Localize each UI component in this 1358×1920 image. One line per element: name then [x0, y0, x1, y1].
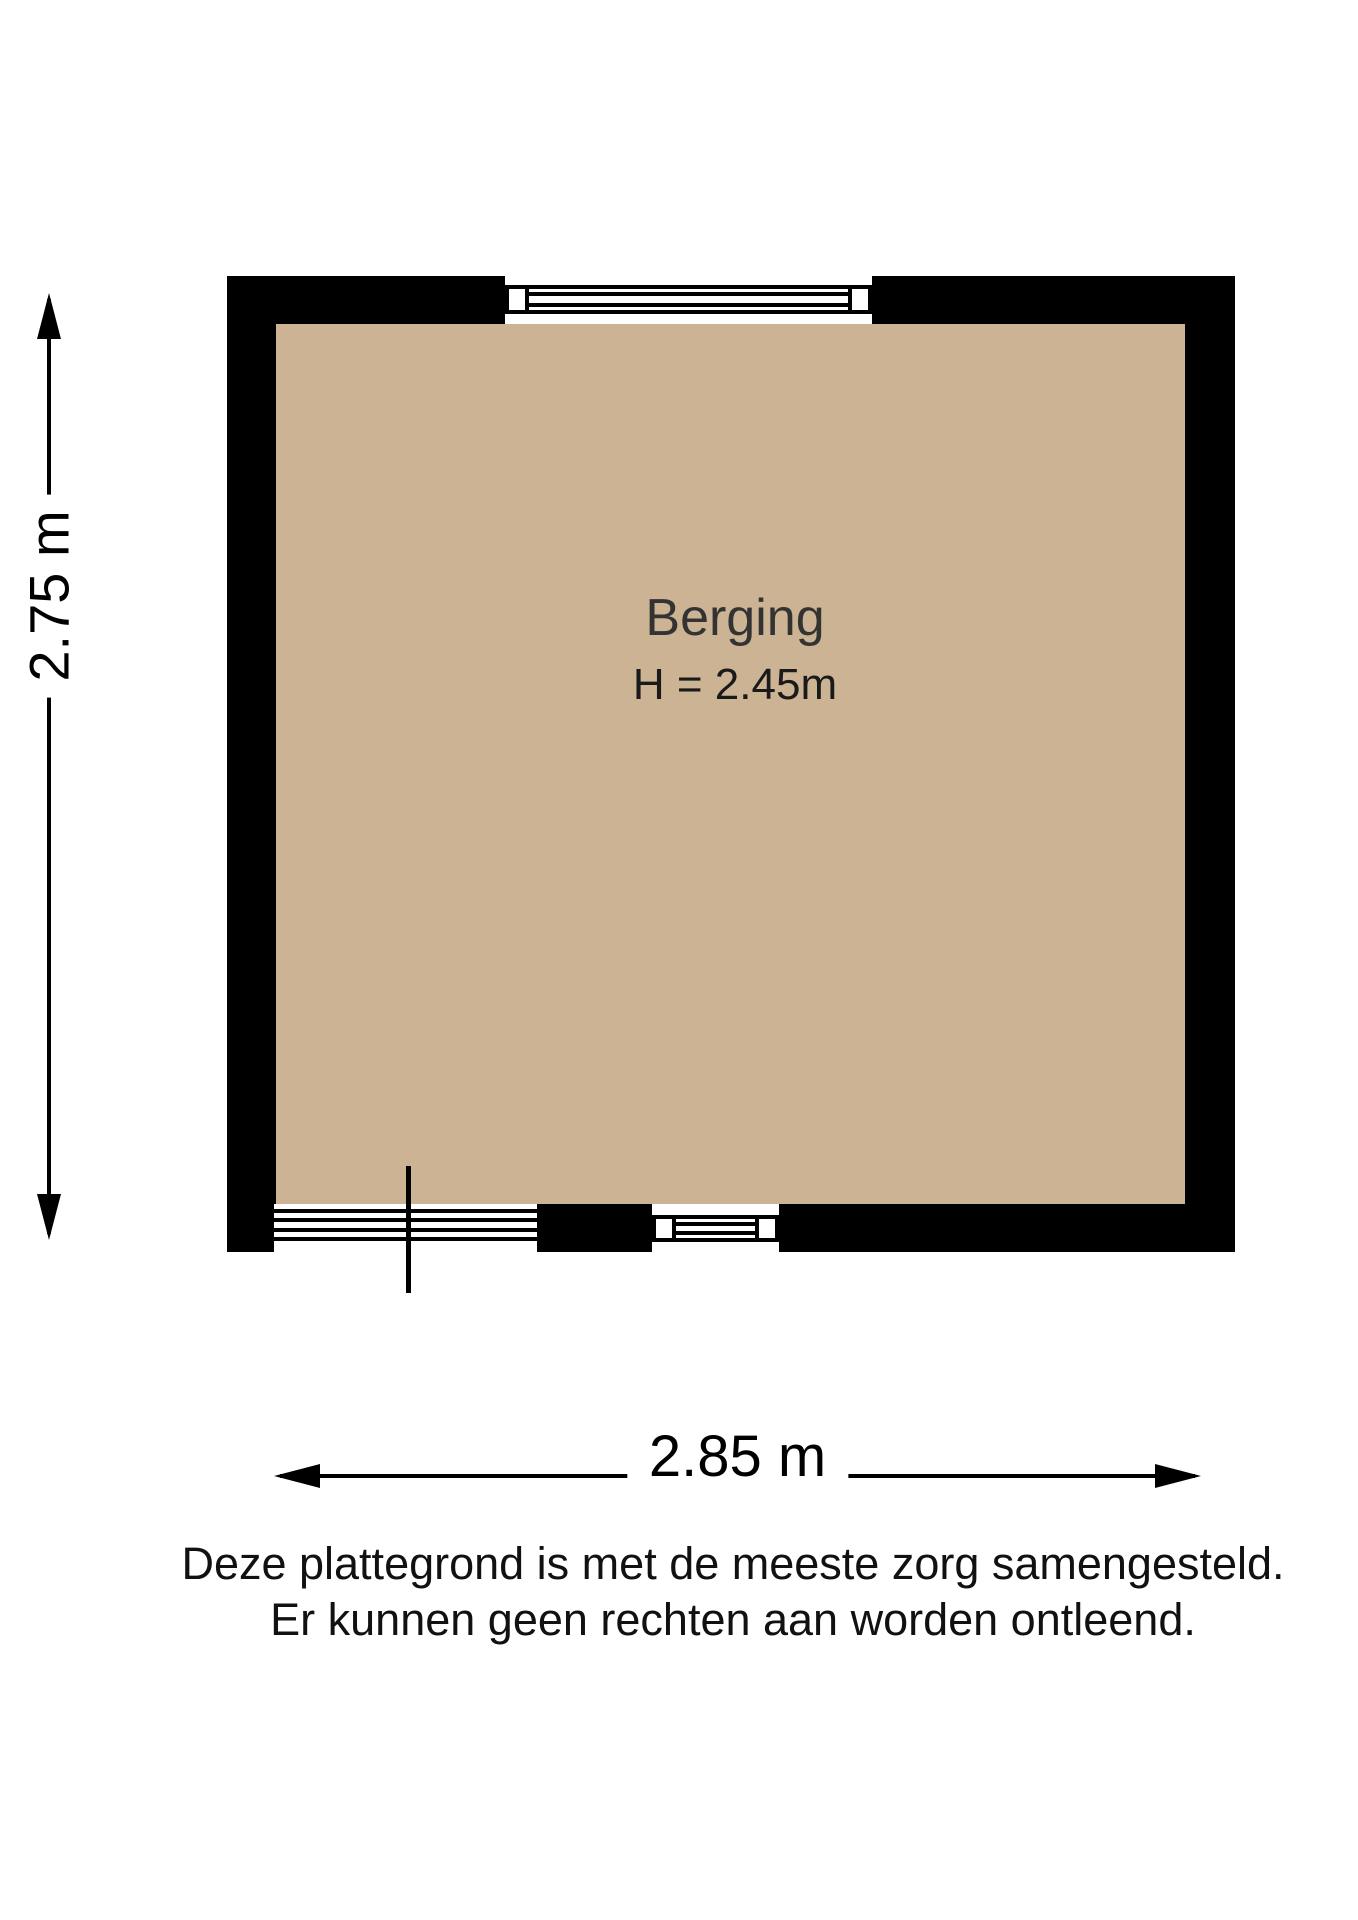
dimension-horizontal-label: 2.85 m [627, 1423, 848, 1490]
disclaimer-text: Deze plattegrond is met de meeste zorg s… [181, 1536, 1284, 1648]
window-end-cap [509, 289, 529, 310]
arrow-down-icon [37, 1194, 61, 1240]
window-glazing [529, 289, 848, 310]
disclaimer-line-1: Deze plattegrond is met de meeste zorg s… [181, 1536, 1284, 1592]
dimension-horizontal: 2.85 m [274, 1425, 1201, 1529]
dimension-line [47, 299, 51, 1234]
arrow-left-icon [274, 1464, 320, 1488]
arrow-up-icon [37, 293, 61, 339]
wall-divider-line [406, 1166, 411, 1293]
window-end-cap [755, 1219, 775, 1238]
window-bottom-center-icon [652, 1215, 779, 1242]
window-end-cap [656, 1219, 676, 1238]
window-top-icon [505, 285, 872, 314]
window-end-cap [848, 289, 868, 310]
room-height-label: H = 2.45m [633, 660, 837, 710]
arrow-right-icon [1155, 1464, 1201, 1488]
room-floor-surface [276, 324, 1185, 1204]
floor-plan-page: Berging H = 2.45m 2.75 m 2.85 m Deze pla… [0, 0, 1358, 1920]
dimension-vertical: 2.75 m [36, 293, 62, 1240]
window-glazing [676, 1219, 755, 1238]
room-name-label: Berging [645, 588, 824, 648]
disclaimer-line-2: Er kunnen geen rechten aan worden ontlee… [181, 1592, 1284, 1648]
dimension-vertical-label: 2.75 m [5, 494, 94, 697]
